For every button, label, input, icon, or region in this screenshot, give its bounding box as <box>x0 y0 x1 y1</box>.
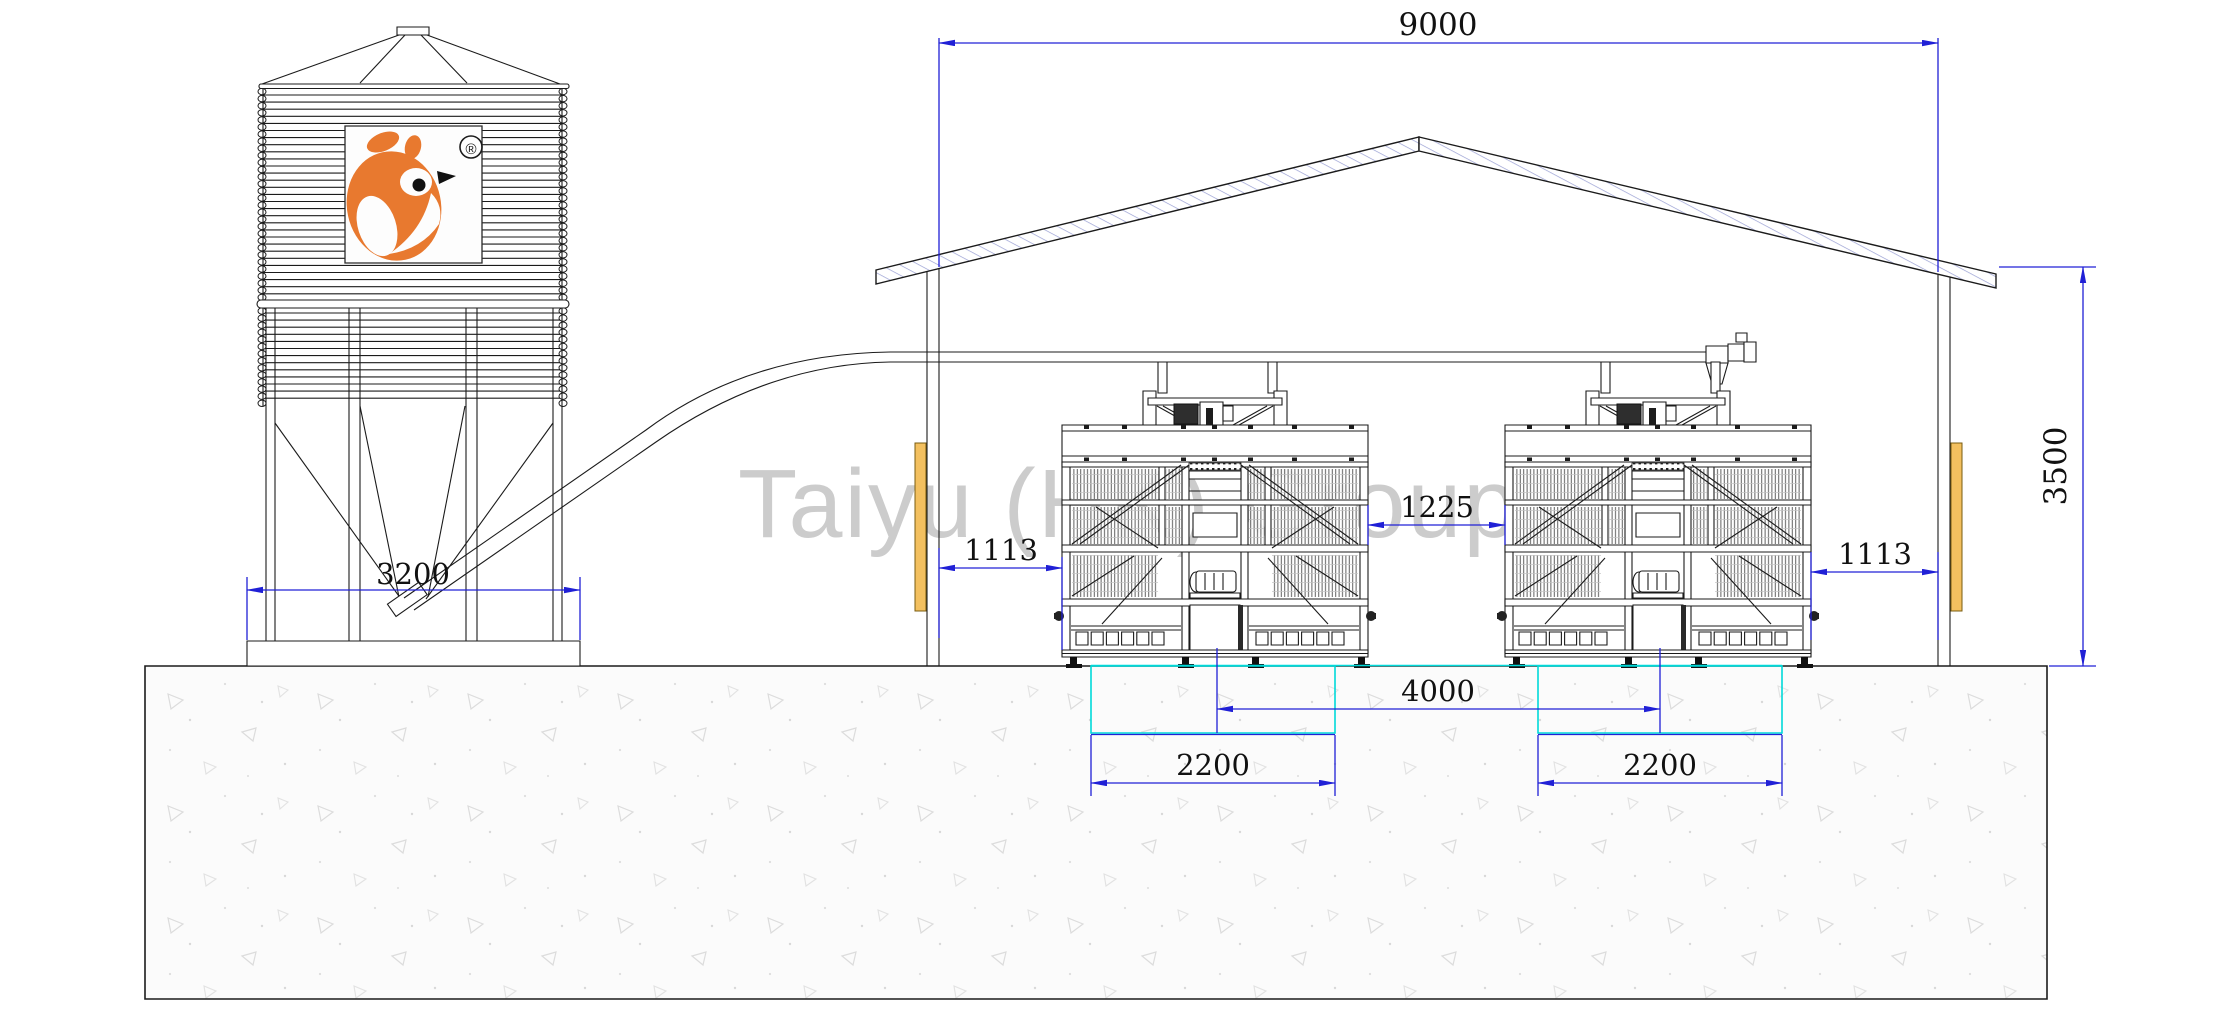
poultry-house <box>876 137 1996 666</box>
left-curtain <box>915 443 926 611</box>
drawing-canvas: Taiyu (HK) Group <box>0 0 2214 1012</box>
silo-plinth <box>247 641 580 666</box>
roof <box>876 137 1996 288</box>
dimension-label-1225: 1225 <box>1400 490 1474 524</box>
battery-cage-left <box>1054 362 1376 668</box>
concrete-foundation <box>145 666 2047 999</box>
silo-roof <box>259 27 569 89</box>
feed-silo: ® <box>247 27 890 666</box>
right-wall <box>1938 274 1950 666</box>
dimension-label-2200-right: 2200 <box>1623 748 1697 782</box>
cad-drawing: Taiyu (HK) Group <box>0 0 2214 1012</box>
dimension-label-1113-left: 1113 <box>964 533 1038 567</box>
dimension-label-3500: 3500 <box>2038 427 2074 506</box>
feed-conveying-pipe <box>890 333 1756 384</box>
registered-mark: ® <box>465 141 476 158</box>
silo-logo-panel: ® <box>337 126 482 270</box>
battery-cage-right <box>1497 362 1819 668</box>
right-curtain <box>1951 443 1962 611</box>
dimension-label-4000: 4000 <box>1401 674 1475 708</box>
dimension-label-2200-left: 2200 <box>1176 748 1250 782</box>
dimension-label-9000: 9000 <box>1399 7 1478 43</box>
silo-band <box>257 300 569 308</box>
dimension-label-3200: 3200 <box>376 557 450 591</box>
dimension-label-1113-right: 1113 <box>1838 537 1912 571</box>
dimension-wall-height: 3500 <box>1999 267 2096 666</box>
dimension-right-gap: 1113 <box>1811 537 1938 640</box>
